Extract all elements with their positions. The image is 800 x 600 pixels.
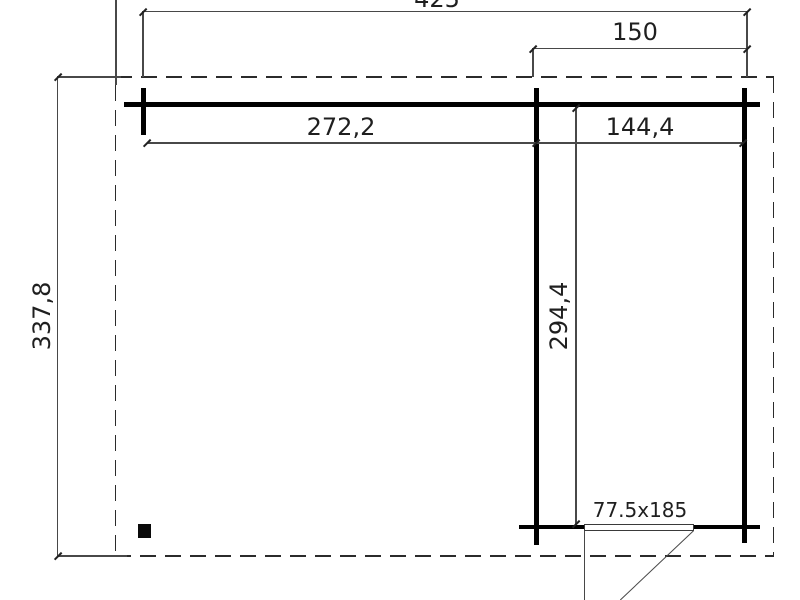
wall-front-right-of-door [694, 525, 760, 530]
roof-outline-bottom [115, 555, 774, 557]
dim-line-right-section-width [533, 48, 747, 49]
dim-label-right-inner-width: 144,4 [580, 115, 700, 139]
dim-line-inner-widths [147, 142, 743, 143]
dim-label-inner-depth: 294,4 [546, 266, 572, 366]
dim-ext-overall-width-left [142, 11, 143, 77]
floor-plan-canvas: 425 150 337,8 272,2 144,4 294,4 77.5x185 [0, 0, 800, 600]
dim-label-overall-width: 425 [407, 0, 467, 11]
dim-ext-overall-depth-top [57, 76, 121, 77]
dim-label-overall-depth: 337,8 [29, 266, 55, 366]
dim-label-door-size: 77.5x185 [578, 500, 702, 520]
wall-right [742, 88, 747, 543]
wall-back [124, 102, 760, 107]
ext-line-top-left [115, 0, 116, 85]
wall-left-log-end [141, 88, 146, 135]
dim-ext-overall-depth-bottom [57, 555, 127, 556]
roof-outline-right [773, 77, 775, 556]
dim-line-overall-depth [57, 77, 58, 556]
dim-ext-right-section-width-left [532, 48, 533, 77]
door-swing-line [620, 530, 694, 600]
dim-label-left-inner-width: 272,2 [281, 115, 401, 139]
door-sill [584, 524, 695, 532]
dim-line-inner-depth [575, 107, 576, 525]
dim-label-right-section-width: 150 [605, 20, 665, 44]
wall-middle [534, 88, 539, 545]
roof-outline-top [116, 76, 774, 78]
dim-ext-overall-width-right [746, 11, 747, 77]
roof-outline-left [115, 85, 117, 556]
door-leaf [584, 531, 585, 600]
terrace-post [138, 524, 152, 539]
